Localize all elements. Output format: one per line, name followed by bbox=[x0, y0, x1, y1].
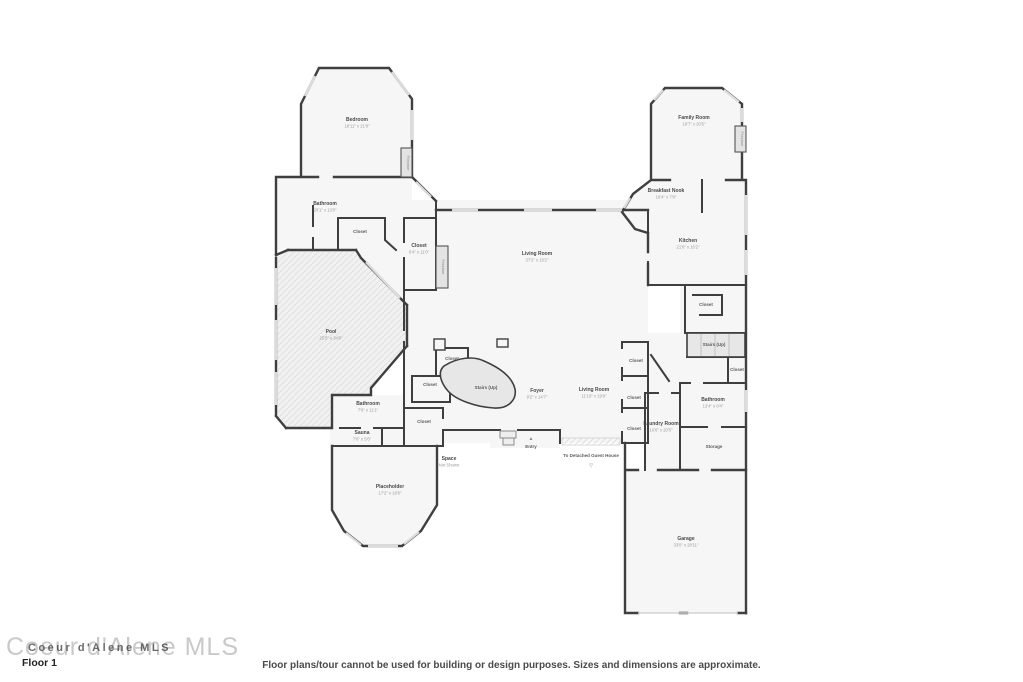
room-label: Bathroom bbox=[701, 397, 725, 403]
room-label: To Detached Guest House bbox=[563, 453, 619, 458]
room-label: Closet bbox=[417, 419, 431, 424]
room-label: Foyer bbox=[530, 388, 544, 394]
room-label: Not Shown bbox=[439, 463, 460, 468]
room-label: Closet bbox=[423, 382, 437, 387]
entry-steps bbox=[500, 431, 516, 438]
room-label: 21'0" x 16'2" bbox=[677, 245, 700, 250]
room-label: Bedroom bbox=[346, 117, 369, 123]
room-label: Space bbox=[442, 456, 457, 462]
room-label: 37'2" x 19'2" bbox=[526, 258, 549, 263]
room-label: 18'11" x 21'8" bbox=[345, 124, 370, 129]
room-label: 6'4" x 11'0" bbox=[409, 250, 430, 255]
room-label: Closet bbox=[445, 356, 459, 361]
room-label: Closet bbox=[353, 229, 367, 234]
room-label: Fireplace bbox=[406, 156, 410, 171]
room-label: 9'2" x 14'7" bbox=[527, 395, 548, 400]
room-label: 19'7" x 20'5" bbox=[683, 122, 706, 127]
room-label: 10'6" x 20'5" bbox=[650, 428, 673, 433]
room-label: Storage bbox=[706, 444, 723, 449]
disclaimer-text: Floor plans/tour cannot be used for buil… bbox=[0, 660, 1023, 671]
guest-house-threshold bbox=[562, 438, 620, 445]
entry-steps bbox=[503, 438, 514, 445]
room-label: ▲ bbox=[529, 436, 534, 442]
room-label: Stairs (Up) bbox=[703, 342, 726, 347]
room-label: Bathroom bbox=[356, 401, 380, 407]
mls-watermark-overlay-text: Coeur d'Alene MLS bbox=[28, 642, 171, 654]
room-label: Garage bbox=[677, 536, 694, 542]
room-label: Closet bbox=[627, 426, 641, 431]
room-label: 13'4" x 8'4" bbox=[703, 404, 724, 409]
room-label: Entry bbox=[525, 444, 537, 449]
floorplan-canvas: Bedroom18'11" x 21'8"Bathroom20'1" x 13'… bbox=[0, 0, 1023, 682]
room-label: Stairs (Up) bbox=[475, 385, 498, 390]
room-label: Placeholder bbox=[376, 484, 404, 490]
room-label: Fireplace bbox=[441, 260, 445, 275]
room-label: 7'6" x 11'1" bbox=[358, 408, 379, 413]
room-label: Closet bbox=[411, 243, 427, 249]
room-label: 25'5" x 34'6" bbox=[320, 336, 343, 341]
room-label: Closet bbox=[730, 367, 744, 372]
room-label: Closet bbox=[627, 395, 641, 400]
room-label: Kitchen bbox=[679, 238, 697, 244]
room-label: Family Room bbox=[678, 115, 710, 121]
room-label: Living Room bbox=[579, 387, 610, 393]
room-label: Sauna bbox=[354, 430, 369, 436]
room-label: 17'2" x 18'6" bbox=[379, 491, 402, 496]
fixture-box bbox=[434, 339, 445, 350]
room-label: 16'4" x 7'9" bbox=[656, 195, 677, 200]
room-label: Breakfast Nook bbox=[648, 188, 685, 194]
room-label: 33'0" x 28'11" bbox=[674, 543, 699, 548]
room-label: Laundry Room bbox=[643, 421, 679, 427]
fixture-box bbox=[497, 339, 508, 347]
room-label: Living Room bbox=[522, 251, 553, 257]
room-label: Closet bbox=[699, 302, 713, 307]
room-label: Pool bbox=[326, 329, 337, 335]
room-label: 20'1" x 13'0" bbox=[314, 208, 337, 213]
room-label: 11'10" x 19'9" bbox=[582, 394, 607, 399]
room-label: Closet bbox=[629, 358, 643, 363]
room-label: Fireplace bbox=[740, 132, 744, 147]
room-label: 7'6" x 5'6" bbox=[353, 437, 372, 442]
floor-plan-svg: Bedroom18'11" x 21'8"Bathroom20'1" x 13'… bbox=[0, 0, 1023, 682]
room-label: ▽ bbox=[589, 463, 593, 469]
room-label: Bathroom bbox=[313, 201, 337, 207]
